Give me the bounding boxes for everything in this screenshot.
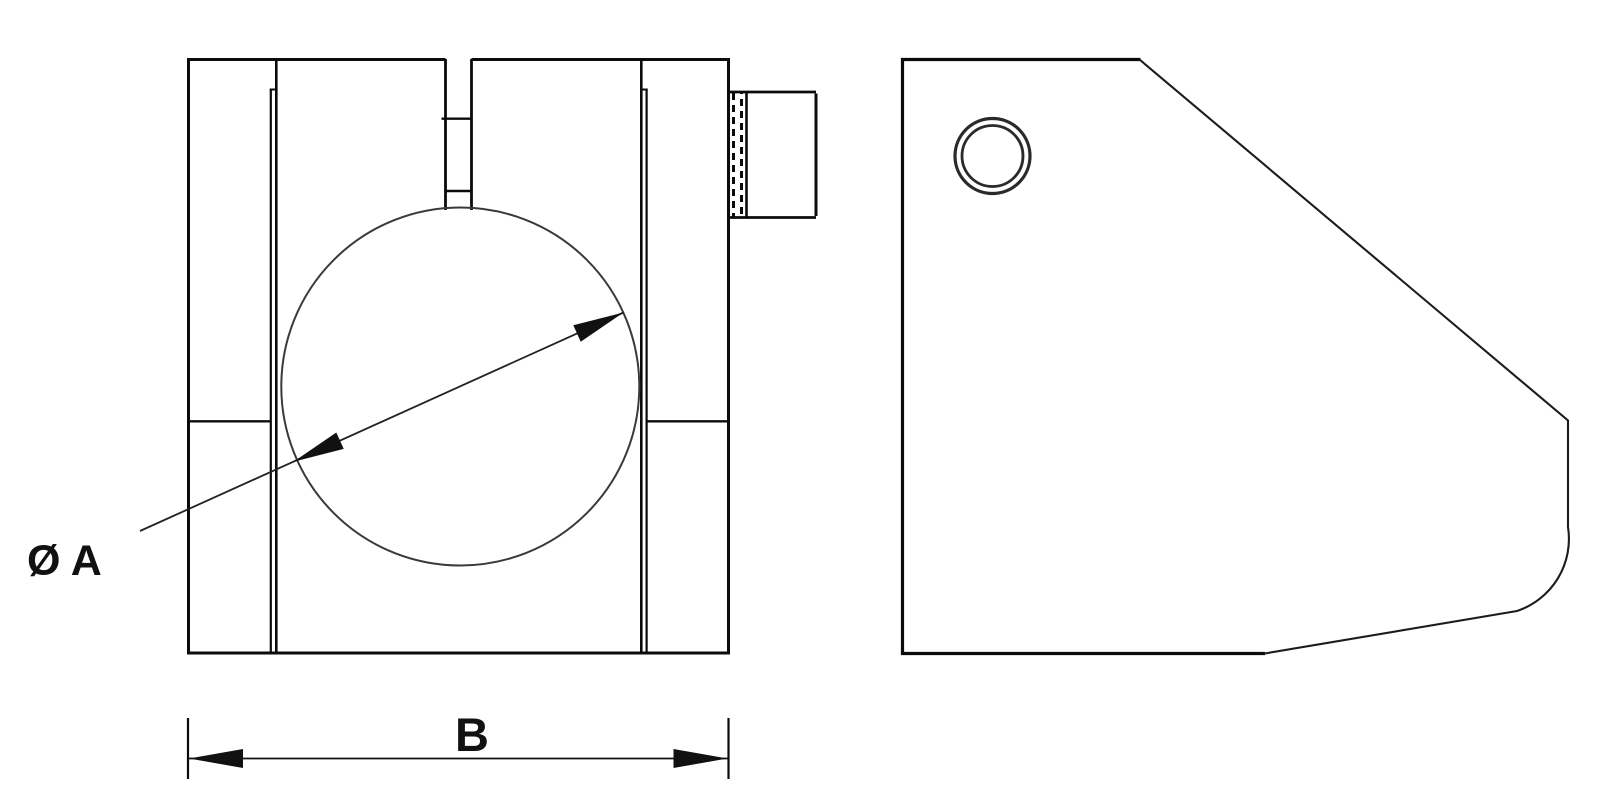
svg-text:B: B [455, 708, 489, 761]
svg-text:Ø A: Ø A [27, 537, 102, 585]
